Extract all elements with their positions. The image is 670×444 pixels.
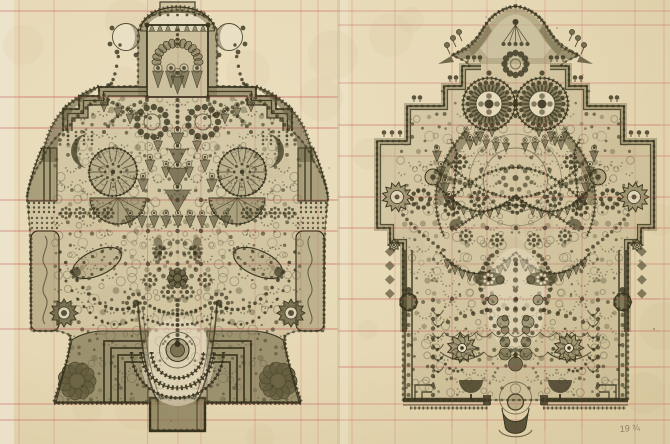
svg-text:19 ¾: 19 ¾ — [619, 423, 640, 434]
